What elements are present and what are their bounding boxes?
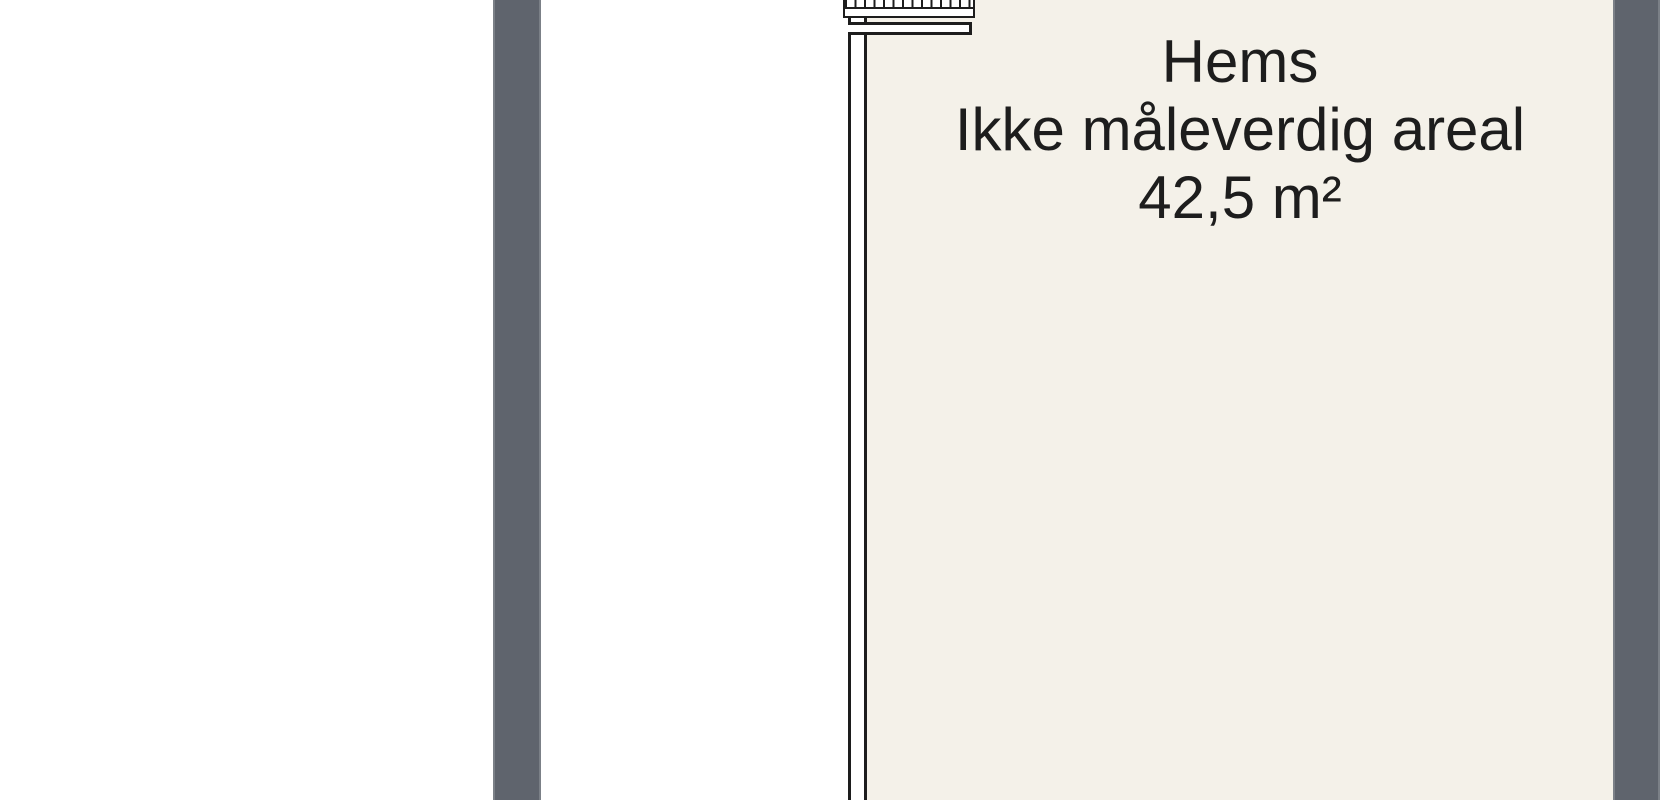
room-name: Hems [867, 28, 1613, 96]
exterior-wall-right [1613, 0, 1660, 800]
room-note: Ikke måleverdig areal [867, 96, 1613, 164]
floorplan-canvas: Hems Ikke måleverdig areal 42,5 m² [0, 0, 1670, 800]
room-wall-left [848, 18, 867, 800]
room-area: 42,5 m² [867, 164, 1613, 232]
room-label: Hems Ikke måleverdig areal 42,5 m² [867, 28, 1613, 232]
stair-rail-line [845, 7, 973, 9]
stair-railing [843, 0, 975, 18]
stair-treads-icon [845, 0, 973, 7]
exterior-wall-left [493, 0, 541, 800]
